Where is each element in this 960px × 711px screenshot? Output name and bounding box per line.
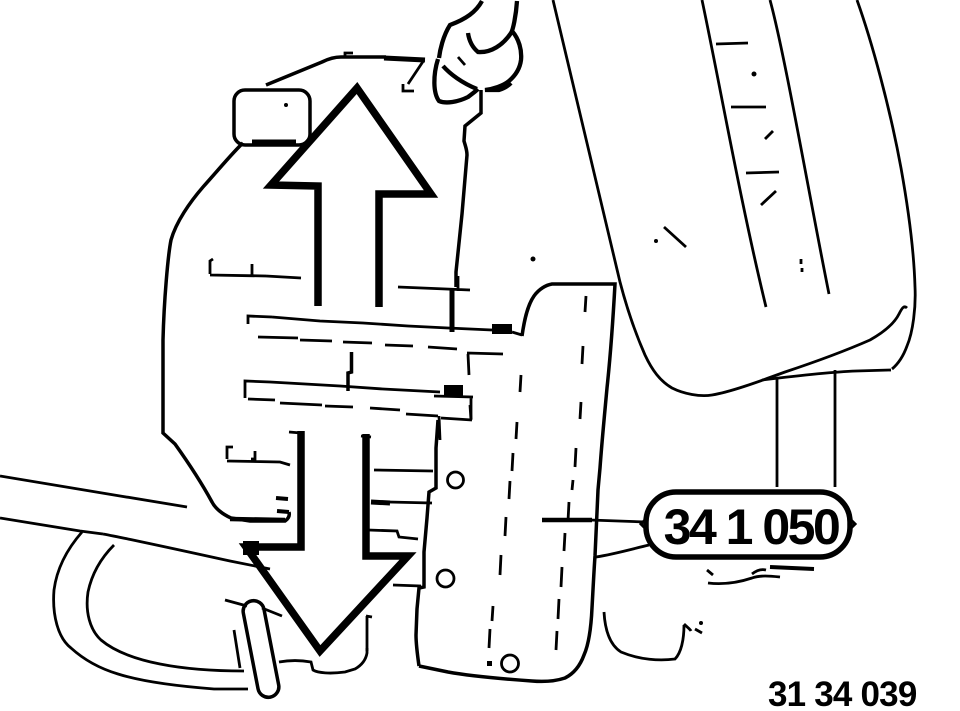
svg-text:31 34 039: 31 34 039 [768, 675, 917, 711]
svg-text:34 1 050: 34 1 050 [664, 499, 839, 555]
